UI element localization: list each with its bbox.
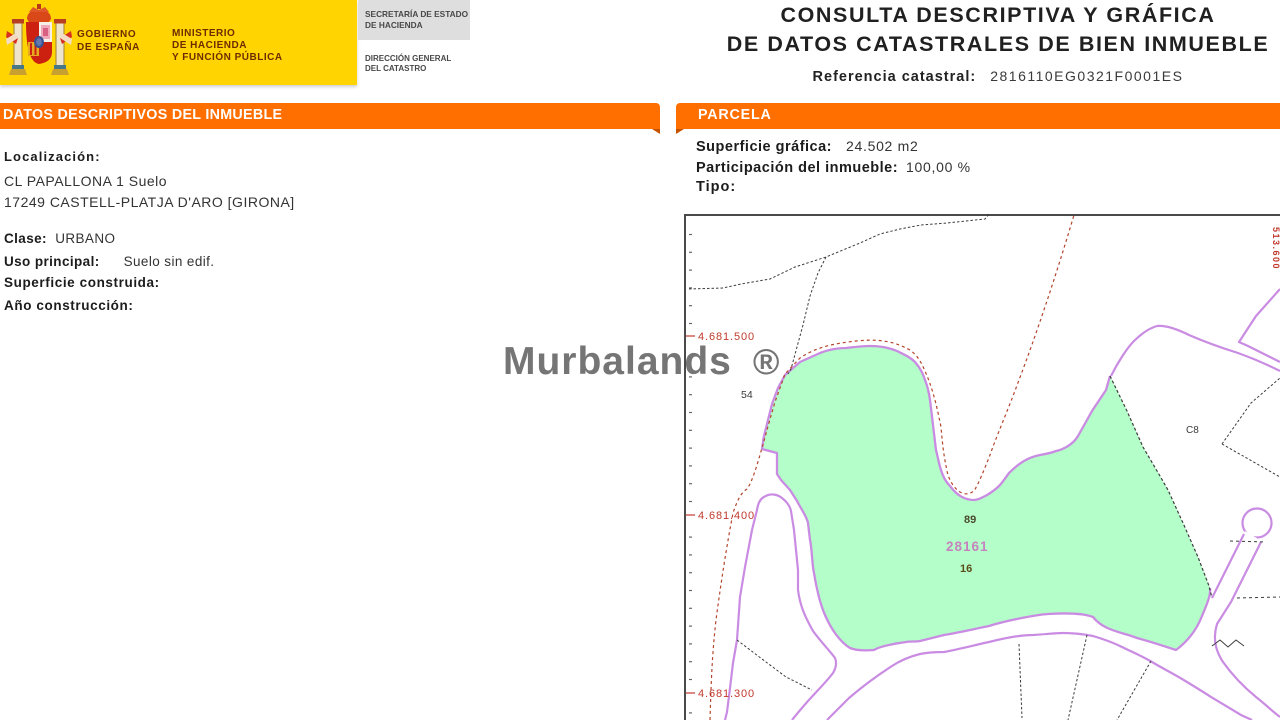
svg-text:4.681.300: 4.681.300 xyxy=(698,688,755,700)
svg-text:513.600: 513.600 xyxy=(1271,227,1280,270)
svg-text:4.681.400: 4.681.400 xyxy=(698,510,755,522)
svg-text:54: 54 xyxy=(741,389,753,401)
svg-text:C8: C8 xyxy=(1186,425,1199,436)
svg-text:89: 89 xyxy=(964,514,976,526)
svg-text:16: 16 xyxy=(960,563,972,575)
svg-text:28161: 28161 xyxy=(946,539,989,554)
